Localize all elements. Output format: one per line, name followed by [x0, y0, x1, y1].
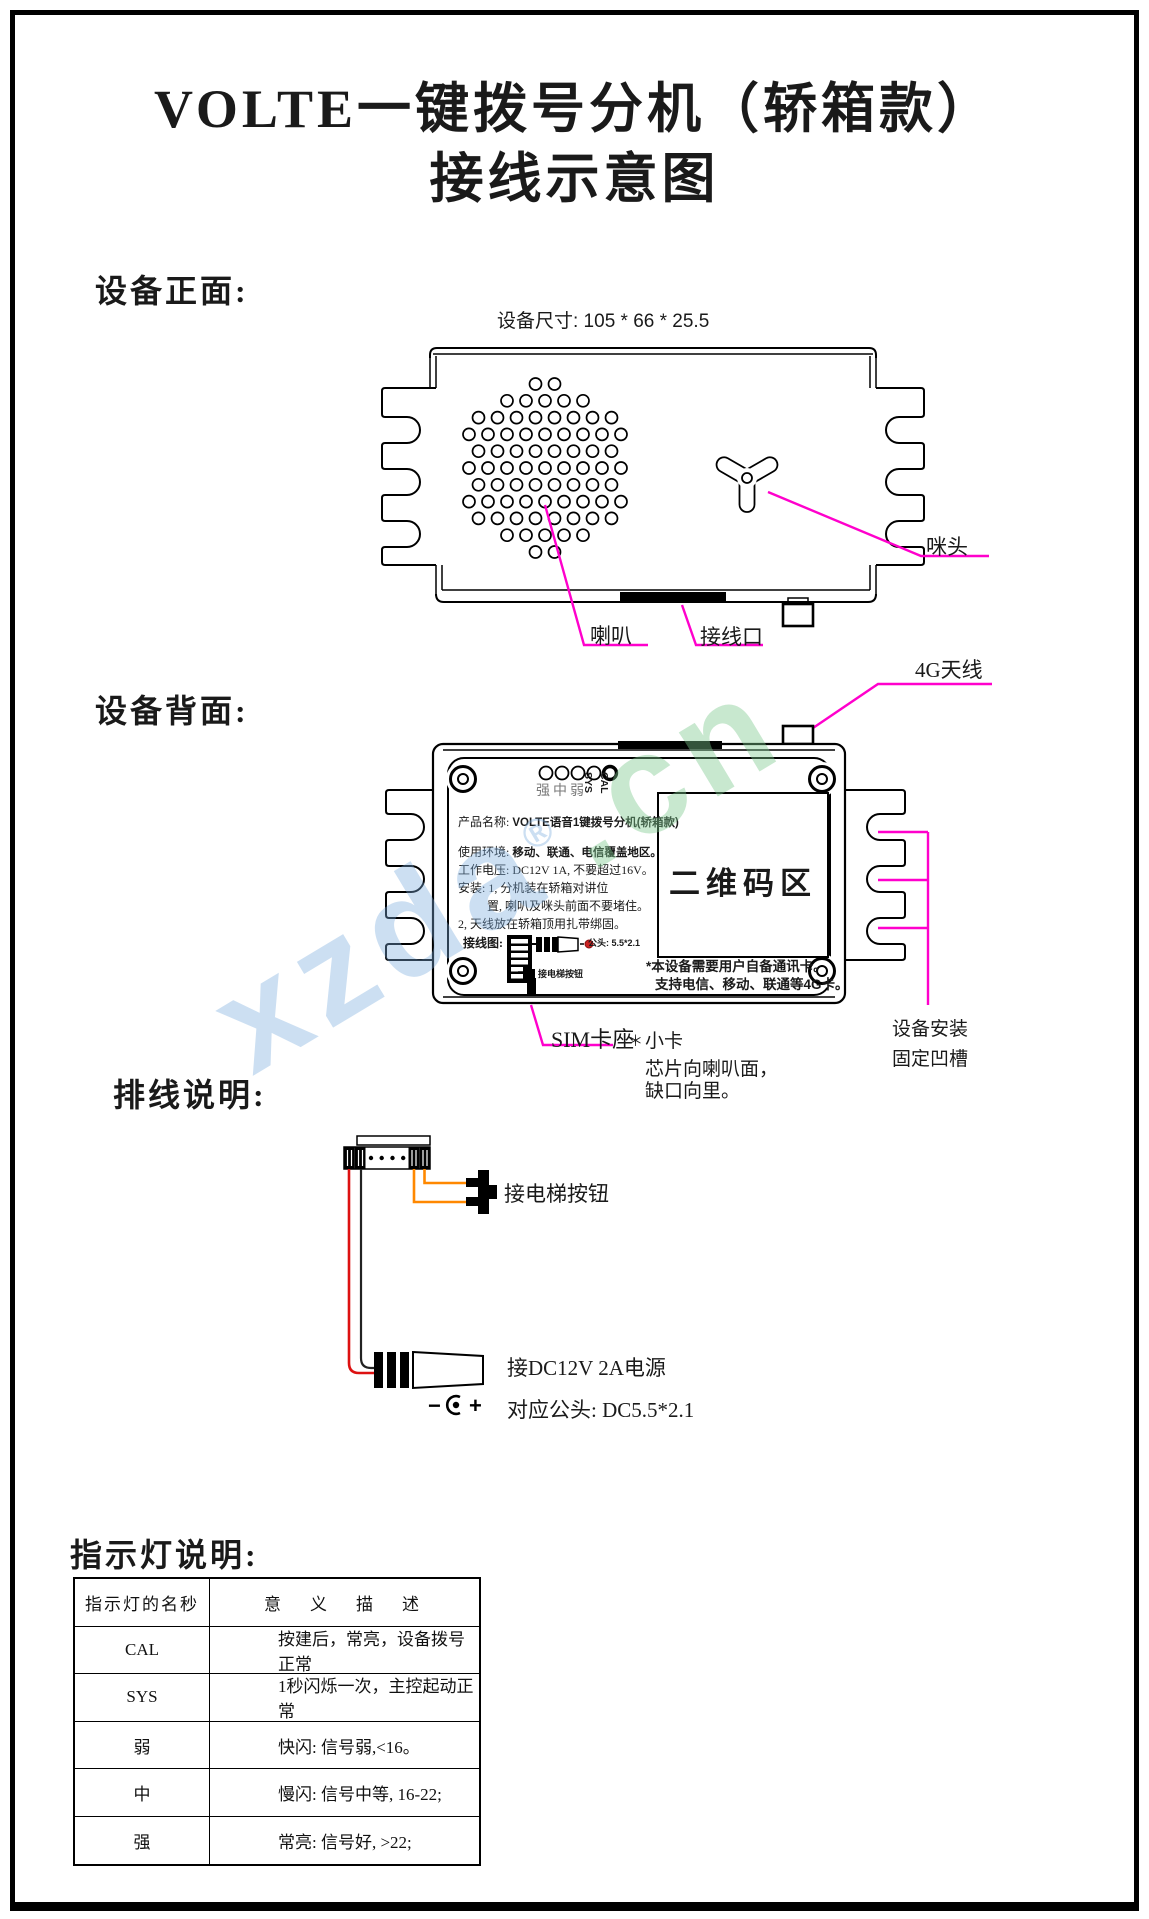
- front-top-edge: [430, 348, 876, 358]
- indicator-name-cell: 强: [75, 1817, 210, 1864]
- indicator-name-cell: 中: [75, 1769, 210, 1816]
- table-row: 中慢闪: 信号中等, 16-22;: [75, 1769, 479, 1817]
- connector-top-bar: [357, 1136, 430, 1145]
- front-section-heading: 设备正面:: [95, 266, 249, 312]
- page-title-line2: 接线示意图: [0, 134, 1149, 213]
- indicator-desc-cell: 慢闪: 信号中等, 16-22;: [210, 1769, 479, 1816]
- wiring-port-label: 接线口: [700, 621, 763, 651]
- sim-desc-line1: 小卡: [645, 1026, 683, 1053]
- front-device-drawing: [317, 335, 1017, 665]
- mic-label: 咪头: [926, 531, 968, 561]
- polarity-plus: +: [469, 1393, 482, 1418]
- indicator-table: 指示灯的名秒 意 义 描 述 CAL按建后，常亮，设备拨号正常SYS1秒闪烁一次…: [73, 1577, 481, 1866]
- button-wire-orange-1: [414, 1169, 468, 1202]
- nameplate-install-line2: 2, 天线放在轿箱顶用扎带绑固。: [458, 915, 626, 932]
- dc-plug-symbol: [374, 1352, 483, 1388]
- indicator-desc-cell: 1秒闪烁一次，主控起动正常: [210, 1674, 479, 1721]
- back-section-heading: 设备背面:: [95, 686, 249, 732]
- nameplate-install-line1: 安装: 1, 分机装在轿箱对讲位: [458, 879, 608, 896]
- indicator-table-rows: CAL按建后，常亮，设备拨号正常SYS1秒闪烁一次，主控起动正常弱快闪: 信号弱…: [75, 1627, 479, 1864]
- indicator-name-cell: SYS: [75, 1674, 210, 1721]
- elevator-button-label: 接电梯按钮: [504, 1178, 609, 1208]
- table-header-desc: 意 义 描 述: [210, 1579, 479, 1626]
- indicator-desc-cell: 按建后，常亮，设备拨号正常: [210, 1627, 479, 1674]
- nameplate-env-line: 使用环境: 移动、联通、电信覆盖地区。: [458, 843, 662, 860]
- card-note-line2: 支持电信、移动、联通等4G卡。: [655, 973, 849, 993]
- indicator-name-cell: CAL: [75, 1627, 210, 1674]
- sim-holder-label: SIM卡座: [551, 1022, 634, 1054]
- wiring-section-heading: 排线说明:: [113, 1070, 267, 1116]
- product-name-value: VOLTE语音1键拨号分机(轿箱款): [512, 817, 679, 829]
- led-sys-label: SYS: [582, 772, 594, 793]
- env-label: 使用环境:: [458, 845, 509, 859]
- plug-spec-label: 对应公头: DC5.5*2.1: [507, 1394, 694, 1424]
- speaker-grille: [463, 378, 627, 558]
- connector-pins: [344, 1147, 430, 1169]
- antenna-stub: [783, 726, 813, 744]
- elevator-button-symbol: [466, 1170, 497, 1214]
- groove-label-line2: 固定凹槽: [892, 1044, 968, 1071]
- speaker-label: 喇叭: [590, 620, 632, 650]
- polarity-minus: −: [428, 1393, 441, 1418]
- table-row: 弱快闪: 信号弱,<16。: [75, 1722, 479, 1770]
- product-name-label: 产品名称:: [458, 815, 509, 829]
- sim-slot-mark: [527, 978, 536, 996]
- sim-star: ＊: [628, 1030, 643, 1051]
- polarity-symbol: − +: [428, 1393, 482, 1418]
- card-note-line1: *本设备需要用户自备通讯卡。: [646, 955, 827, 975]
- indicator-section-heading: 指示灯说明:: [70, 1530, 259, 1576]
- back-top-slot: [618, 741, 722, 749]
- device-dimensions: 设备尺寸: 105 * 66 * 25.5: [497, 306, 709, 333]
- antenna-callout-line: [813, 684, 992, 728]
- led-cal-label: CAL: [598, 772, 610, 794]
- table-row: 强常亮: 信号好, >22;: [75, 1817, 479, 1864]
- led-signal-labels: 强中弱: [536, 780, 587, 800]
- qr-zone-label: 二维码区: [658, 858, 828, 903]
- nameplate-wiring-label: 接线图:: [463, 934, 503, 951]
- indicator-name-cell: 弱: [75, 1722, 210, 1769]
- table-header-name: 指示灯的名秒: [75, 1579, 210, 1626]
- nameplate-product-line: 产品名称: VOLTE语音1键拨号分机(轿箱款): [458, 813, 679, 830]
- back-left-mount-flange: [386, 790, 433, 960]
- table-header-row: 指示灯的名秒 意 义 描 述: [75, 1579, 479, 1627]
- page-title-line1: VOLTE一键拨号分机（轿箱款）: [0, 64, 1149, 143]
- front-left-mount-flange: [382, 388, 436, 565]
- back-right-mount-flange: [845, 790, 905, 960]
- power-wire-black: [361, 1169, 375, 1368]
- wiring-instruction-sheet: VOLTE一键拨号分机（轿箱款） 接线示意图 设备正面: 设备尺寸: 105 *…: [0, 0, 1149, 1919]
- indicator-desc-cell: 常亮: 信号好, >22;: [210, 1817, 479, 1864]
- nameplate-button-note: 接电梯按钮: [538, 967, 583, 980]
- power-label: 接DC12V 2A电源: [507, 1352, 666, 1382]
- nameplate-install-line1b: 置, 喇叭及咪头前面不要堵住。: [487, 897, 649, 914]
- env-value: 移动、联通、电信覆盖地区。: [512, 847, 662, 859]
- front-right-mount-flange: [876, 388, 924, 565]
- nameplate-voltage-line: 工作电压: DC12V 1A, 不要超过16V。: [458, 861, 654, 878]
- button-wire-orange-2: [425, 1169, 469, 1183]
- indicator-desc-cell: 快闪: 信号弱,<16。: [210, 1722, 479, 1769]
- wiring-diagram: − +: [280, 1130, 740, 1430]
- groove-label-line1: 设备安装: [892, 1014, 968, 1041]
- sim-desc-line3: 缺口向里。: [645, 1076, 740, 1103]
- mic-hole: [714, 455, 780, 512]
- front-connector-stub: [783, 604, 813, 626]
- table-row: CAL按建后，常亮，设备拨号正常: [75, 1627, 479, 1675]
- front-wiring-port-slot: [620, 592, 726, 601]
- nameplate-plug-note: 公头: 5.5*2.1: [588, 936, 640, 949]
- table-row: SYS1秒闪烁一次，主控起动正常: [75, 1674, 479, 1722]
